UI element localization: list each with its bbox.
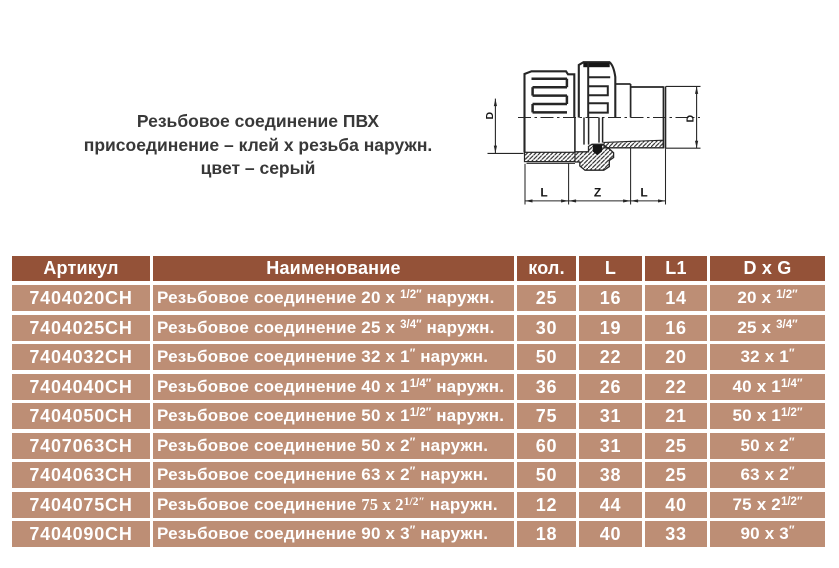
svg-text:D: D (484, 112, 496, 120)
svg-text:L: L (540, 186, 547, 200)
svg-text:L: L (640, 186, 647, 200)
svg-text:D: D (684, 115, 696, 123)
svg-text:Z: Z (594, 186, 601, 200)
